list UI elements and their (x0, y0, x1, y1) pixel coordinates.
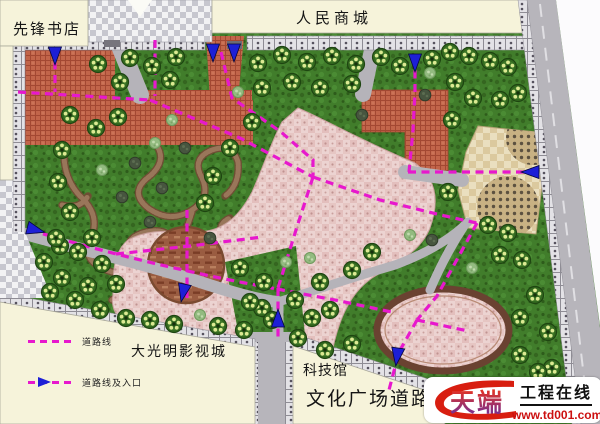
legend-label: 道路线 (82, 335, 112, 348)
dashed-line-icon (28, 340, 74, 343)
tree (256, 274, 273, 291)
entrance-arrow-icon (38, 377, 51, 387)
watermark: 天端 工程在线 www.td001.com (424, 377, 600, 423)
tree (62, 204, 79, 221)
tree (232, 260, 249, 277)
tree (373, 49, 390, 66)
tree (50, 174, 67, 191)
tree (88, 120, 105, 137)
watermark-title: 工程在线 (520, 379, 592, 406)
watermark-brand: 天端 (450, 383, 504, 419)
tree (500, 59, 517, 76)
tree (392, 58, 409, 75)
tree (512, 310, 529, 327)
tree (48, 230, 65, 247)
tree (70, 244, 87, 261)
bush (97, 165, 108, 176)
tree (222, 140, 239, 157)
bush (156, 182, 168, 194)
tree (465, 90, 482, 107)
label-science-museum: 科技馆 (303, 360, 348, 380)
tree (42, 284, 59, 301)
tree (254, 80, 271, 97)
tree (162, 72, 179, 89)
tree (514, 252, 531, 269)
bush (150, 138, 161, 149)
tree (54, 142, 71, 159)
tree (274, 47, 291, 64)
bush (233, 87, 244, 98)
tree (168, 49, 185, 66)
label-culture-plaza-road: 文化广场道路 (306, 384, 432, 411)
tree (500, 225, 517, 242)
tree (108, 276, 125, 293)
tree (461, 48, 478, 65)
tree (512, 347, 529, 364)
tree (348, 56, 365, 73)
bush (467, 263, 478, 274)
tree (142, 312, 159, 329)
tree (92, 302, 109, 319)
tree (54, 270, 71, 287)
tree (317, 342, 334, 359)
building-left-strip (0, 46, 13, 180)
tree (112, 74, 129, 91)
tree (242, 294, 259, 311)
tree (144, 58, 161, 75)
tree (492, 92, 509, 109)
tree (110, 109, 127, 126)
south-road (249, 332, 296, 424)
tree (90, 56, 107, 73)
tree (510, 85, 527, 102)
legend-item-road-line: 道路线 (28, 335, 112, 348)
tree (62, 107, 79, 124)
bush (281, 257, 292, 268)
bush (419, 89, 431, 101)
bush (204, 232, 216, 244)
bush (116, 191, 128, 203)
tree (482, 53, 499, 70)
tree (67, 292, 84, 309)
bush (426, 234, 438, 246)
tree (122, 50, 139, 67)
tree (344, 76, 361, 93)
tree (527, 287, 544, 304)
tree (287, 292, 304, 309)
watermark-url[interactable]: www.td001.com (512, 408, 600, 422)
bush (167, 115, 178, 126)
tree (540, 324, 557, 341)
plaza-plan-page: 先锋书店 人民商城 大光明影视城 科技馆 文化广场道路 道路线 道路线及入口 天… (0, 0, 600, 424)
tree (244, 114, 261, 131)
tree (118, 310, 135, 327)
tree (364, 244, 381, 261)
bush (179, 142, 191, 154)
tree (250, 55, 267, 72)
bush (195, 310, 206, 321)
tree (424, 51, 441, 68)
tree (284, 74, 301, 91)
tree (322, 302, 339, 319)
legend-label: 道路线及入口 (82, 376, 142, 389)
tree (80, 278, 97, 295)
tree (444, 112, 461, 129)
tree (166, 316, 183, 333)
tree (480, 217, 497, 234)
tree (36, 254, 53, 271)
tree (344, 262, 361, 279)
dashed-line-arrow-icon (28, 381, 74, 384)
bush (356, 109, 368, 121)
bush (129, 157, 141, 169)
legend-item-road-entrance: 道路线及入口 (28, 376, 142, 389)
tree (492, 247, 509, 264)
tree (299, 54, 316, 71)
tree (197, 195, 214, 212)
tree (324, 48, 341, 65)
tree (312, 274, 329, 291)
tree (312, 80, 329, 97)
label-film-city: 大光明影视城 (131, 341, 227, 361)
tree (344, 336, 361, 353)
tree (447, 74, 464, 91)
bush (425, 68, 436, 79)
bush (144, 216, 156, 228)
tree (236, 322, 253, 339)
park-map (0, 0, 600, 424)
tree (442, 44, 459, 61)
bush (305, 253, 316, 264)
tree (210, 318, 227, 335)
bush (405, 230, 416, 241)
tree (94, 256, 111, 273)
label-people-mall: 人民商城 (296, 7, 372, 28)
tree (304, 310, 321, 327)
tree (205, 168, 222, 185)
tree (440, 184, 457, 201)
tree (84, 230, 101, 247)
label-bookstore: 先锋书店 (13, 18, 81, 39)
tree (290, 330, 307, 347)
